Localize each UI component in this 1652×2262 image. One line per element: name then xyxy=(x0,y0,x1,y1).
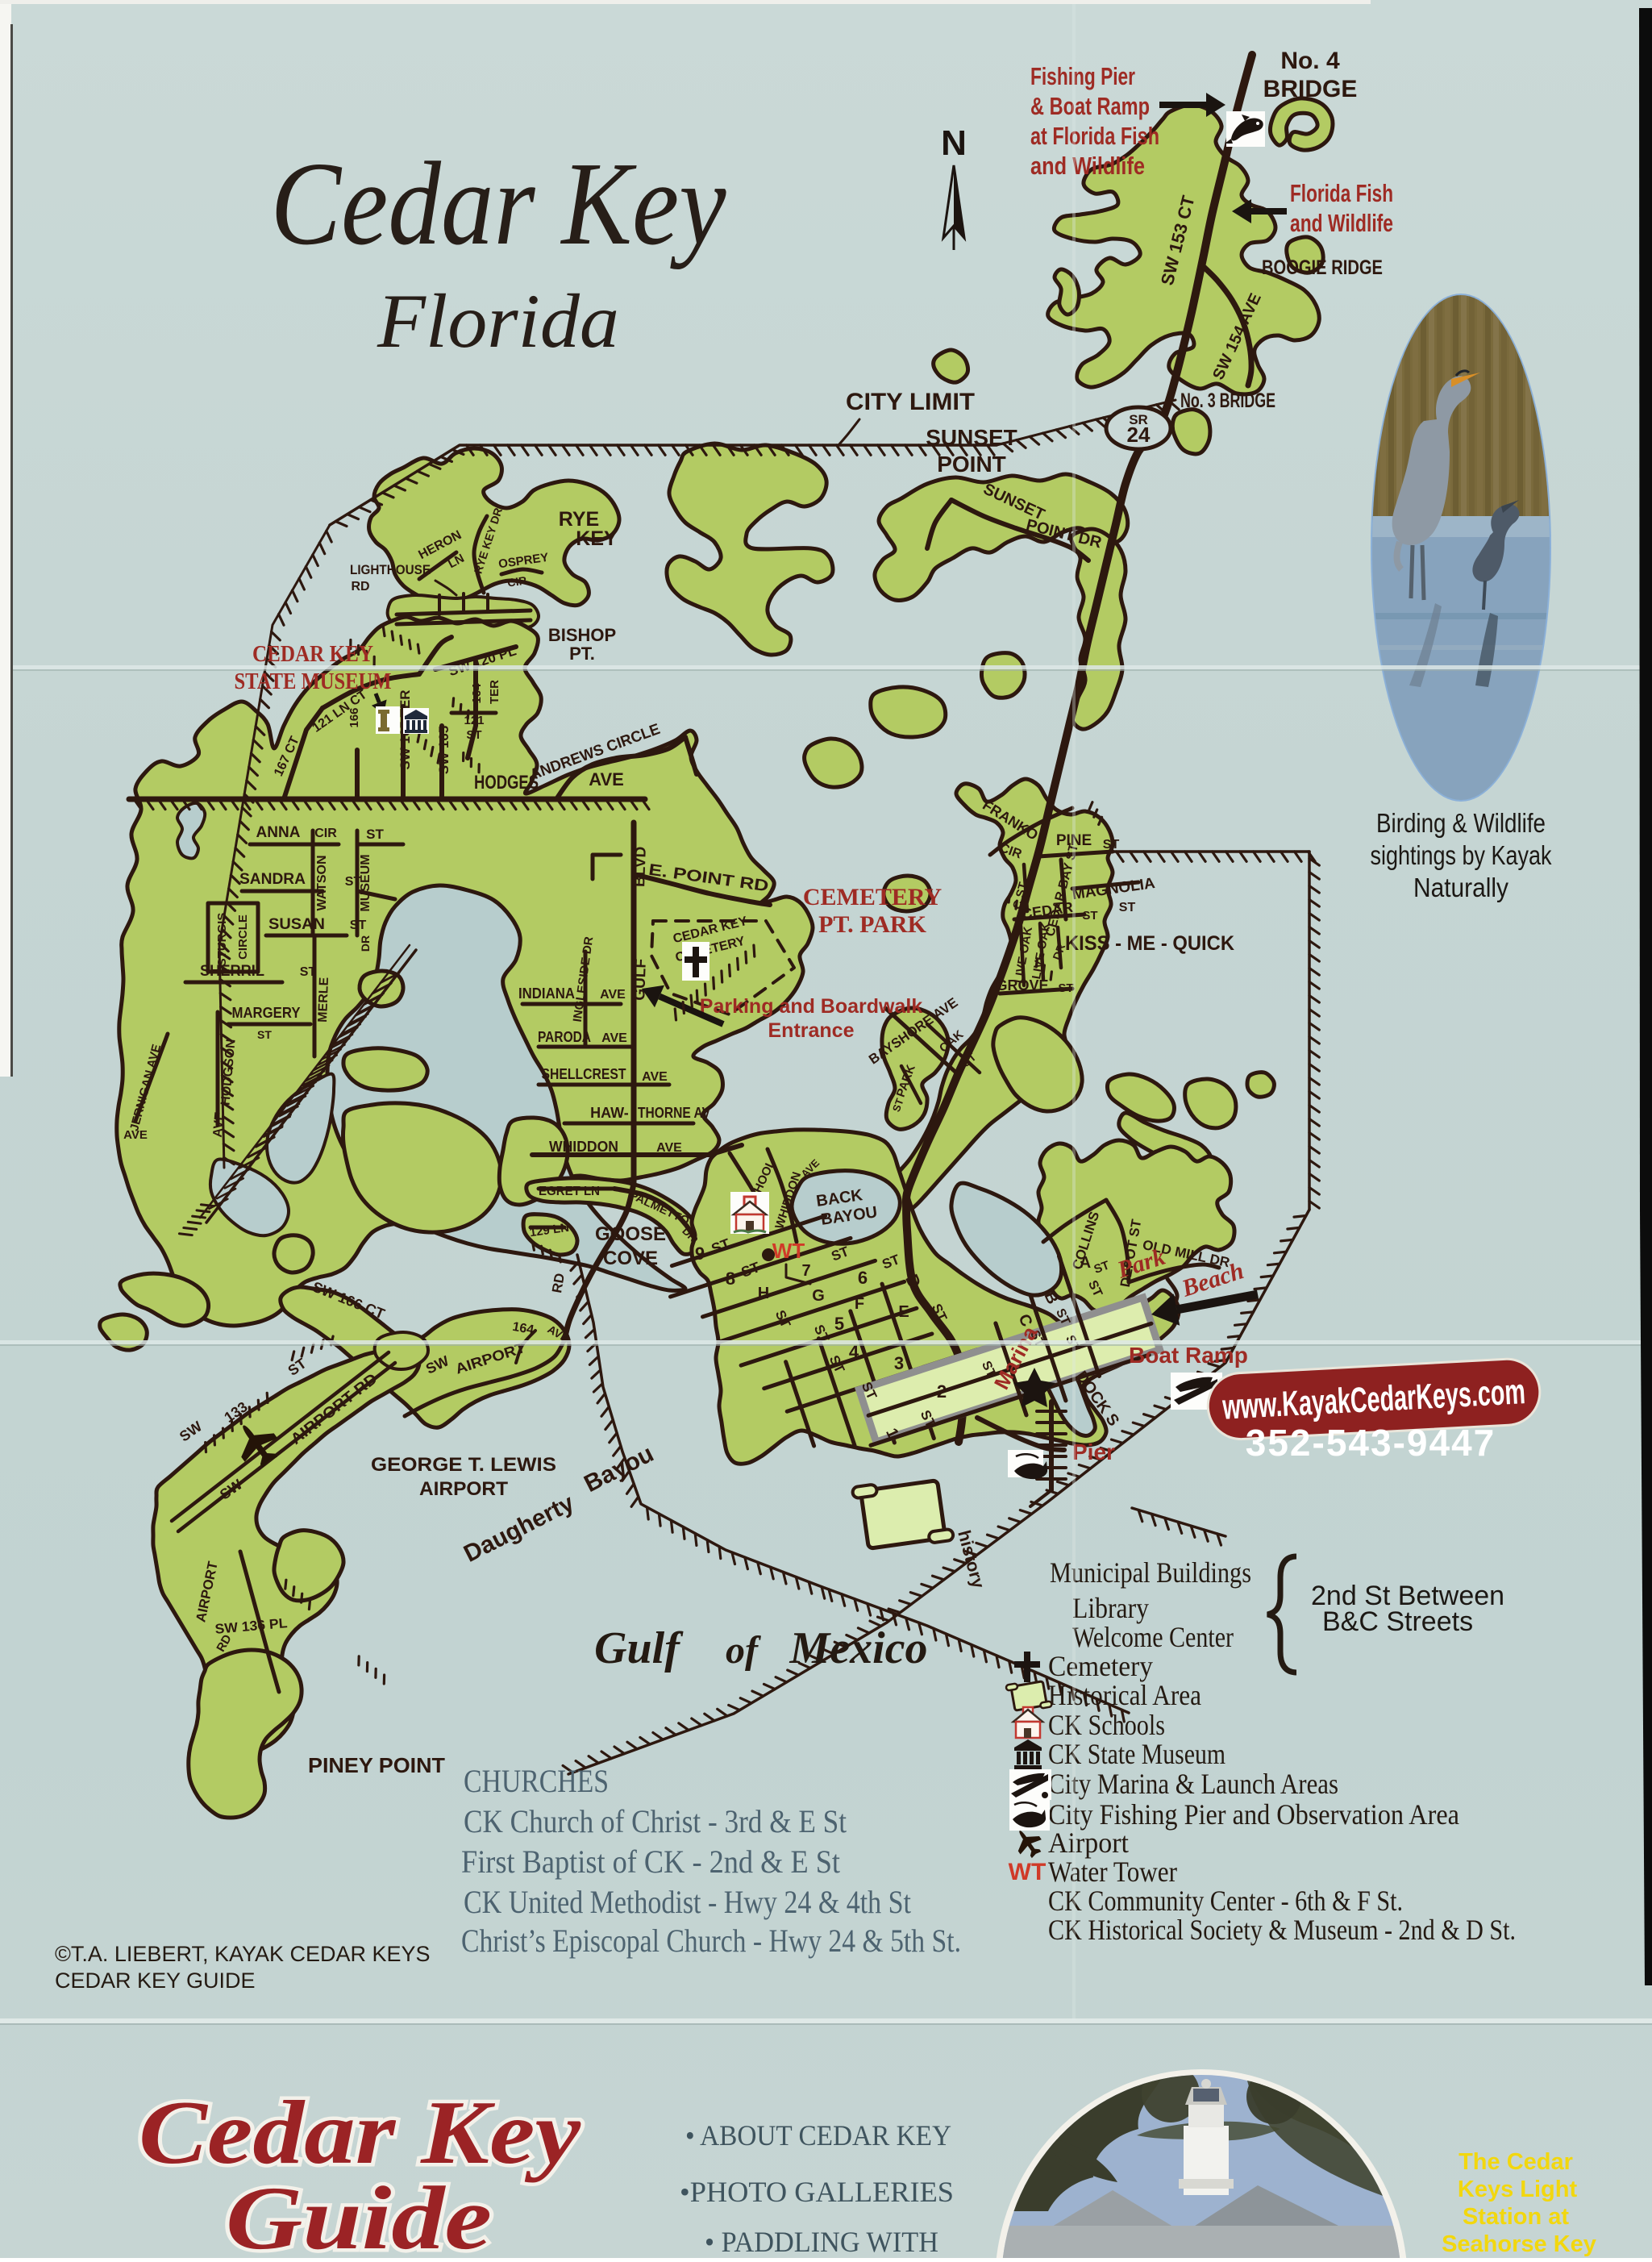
svg-text:Naturally: Naturally xyxy=(1413,873,1508,902)
svg-text:LIGHTHOUSE: LIGHTHOUSE xyxy=(350,562,431,577)
svg-text:PINEY POINT: PINEY POINT xyxy=(308,1753,445,1777)
svg-text:ST: ST xyxy=(466,728,481,742)
svg-text:WHIDDON: WHIDDON xyxy=(549,1139,618,1155)
svg-text:N: N xyxy=(941,123,967,163)
svg-text:PARODA: PARODA xyxy=(538,1029,591,1045)
svg-text:WT: WT xyxy=(1009,1859,1047,1885)
svg-text:GEORGE T. LEWIS: GEORGE T. LEWIS xyxy=(371,1454,556,1476)
svg-text:121: 121 xyxy=(464,714,484,727)
svg-text:E: E xyxy=(898,1303,909,1321)
svg-text:AIRPORT: AIRPORT xyxy=(419,1478,508,1500)
svg-text:ST: ST xyxy=(300,965,317,979)
svg-text:9: 9 xyxy=(695,1243,705,1264)
svg-text:SANDRA: SANDRA xyxy=(239,871,306,888)
svg-text:& Boat Ramp: & Boat Ramp xyxy=(1030,92,1150,120)
svg-text:7: 7 xyxy=(801,1262,810,1280)
svg-text:CEMETERY: CEMETERY xyxy=(803,884,943,910)
svg-text:AVE: AVE xyxy=(589,769,624,789)
svg-text:AVE: AVE xyxy=(656,1141,682,1155)
svg-text:MUSEUM: MUSEUM xyxy=(359,854,372,911)
svg-text:and Wildlife: and Wildlife xyxy=(1290,209,1393,237)
svg-text:6: 6 xyxy=(858,1268,868,1288)
svg-text:Gulf: Gulf xyxy=(594,1623,684,1673)
svg-text:Christ’s Episcopal Church - Hw: Christ’s Episcopal Church - Hwy 24 & 5th… xyxy=(461,1922,961,1959)
svg-text:5: 5 xyxy=(834,1314,844,1334)
svg-text:City Fishing Pier and Observat: City Fishing Pier and Observation Area xyxy=(1048,1798,1459,1831)
svg-text:Boat Ramp: Boat Ramp xyxy=(1129,1343,1248,1368)
svg-text:HAW-: HAW- xyxy=(590,1105,629,1121)
svg-text:ST: ST xyxy=(1058,981,1073,995)
svg-text:CK Community Center - 6th & F: CK Community Center - 6th & F St. xyxy=(1048,1885,1403,1917)
svg-text:166: 166 xyxy=(347,707,361,727)
svg-text:Municipal Buildings: Municipal Buildings xyxy=(1050,1556,1251,1589)
svg-text:Birding & Wildlife: Birding & Wildlife xyxy=(1376,808,1546,838)
svg-text:THORNE AV: THORNE AV xyxy=(638,1105,710,1121)
svg-text:Pier: Pier xyxy=(1072,1439,1115,1464)
svg-text:AVE: AVE xyxy=(642,1070,668,1084)
svg-text:DR: DR xyxy=(359,935,372,952)
svg-text:CIRCLE: CIRCLE xyxy=(236,914,250,960)
svg-text:Library: Library xyxy=(1072,1592,1149,1624)
svg-text:BRIDGE: BRIDGE xyxy=(1263,76,1358,102)
svg-text:SHERRIL: SHERRIL xyxy=(200,963,264,980)
svg-text:B&C Streets: B&C Streets xyxy=(1322,1606,1473,1637)
svg-text:SHELLCREST: SHELLCREST xyxy=(542,1066,626,1082)
svg-text:ST: ST xyxy=(1103,838,1120,852)
svg-text:SUNSET: SUNSET xyxy=(926,425,1017,450)
svg-text:No. 3 BRIDGE: No. 3 BRIDGE xyxy=(1180,389,1275,412)
svg-text:RD: RD xyxy=(351,580,369,594)
svg-text:Entrance: Entrance xyxy=(768,1019,855,1042)
svg-text:©T.A. LIEBERT, KAYAK CEDAR KEY: ©T.A. LIEBERT, KAYAK CEDAR KEYS xyxy=(55,1942,431,1966)
svg-text:PT.: PT. xyxy=(569,644,595,664)
svg-text:CK Church of Christ - 3rd & E: CK Church of Christ - 3rd & E St xyxy=(464,1803,847,1839)
svg-text:STURGIS: STURGIS xyxy=(215,913,229,967)
svg-text:CK United Methodist - Hwy 24 &: CK United Methodist - Hwy 24 & 4th St xyxy=(464,1884,911,1920)
svg-text:at Florida Fish: at Florida Fish xyxy=(1030,122,1159,150)
svg-text:POINT: POINT xyxy=(937,452,1006,477)
svg-text:MARGERY: MARGERY xyxy=(232,1005,301,1021)
svg-text:STATE MUSEUM: STATE MUSEUM xyxy=(235,669,392,694)
svg-text:Historical Area: Historical Area xyxy=(1048,1679,1201,1711)
svg-text:ST: ST xyxy=(366,827,384,842)
svg-text:KISS - ME - QUICK: KISS - ME - QUICK xyxy=(1065,932,1234,955)
svg-text:Mexico: Mexico xyxy=(789,1623,927,1673)
svg-text:CEDAR KEY GUIDE: CEDAR KEY GUIDE xyxy=(55,1968,256,1993)
svg-text:CK Schools: CK Schools xyxy=(1048,1709,1165,1741)
svg-text:Florida Fish: Florida Fish xyxy=(1290,179,1393,207)
svg-text:ST: ST xyxy=(1082,909,1097,923)
svg-text:First Baptist of CK - 2nd & E: First Baptist of CK - 2nd & E St xyxy=(461,1843,840,1880)
svg-text:SUSAN: SUSAN xyxy=(268,916,325,933)
svg-text:MERLE: MERLE xyxy=(316,977,331,1023)
svg-text:Fishing Pier: Fishing Pier xyxy=(1030,62,1135,90)
svg-text:TER: TER xyxy=(488,680,501,704)
svg-text:CHURCHES: CHURCHES xyxy=(464,1763,609,1799)
svg-text:CEDAR KEY: CEDAR KEY xyxy=(252,642,373,667)
svg-text:Guide: Guide xyxy=(226,2168,492,2258)
svg-text:City Marina & Launch Areas: City Marina & Launch Areas xyxy=(1048,1768,1338,1800)
svg-text:CIR: CIR xyxy=(314,827,337,840)
svg-text:BOOGIE RIDGE: BOOGIE RIDGE xyxy=(1262,256,1383,279)
svg-text:PT. PARK: PT. PARK xyxy=(818,911,927,938)
svg-text:F: F xyxy=(855,1295,864,1313)
svg-text:KEY: KEY xyxy=(576,527,618,550)
svg-text:CITY LIMIT: CITY LIMIT xyxy=(846,389,975,415)
svg-text:No. 4: No. 4 xyxy=(1280,48,1340,74)
svg-text:of: of xyxy=(726,1629,761,1672)
svg-text:sightings by Kayak: sightings by Kayak xyxy=(1371,840,1552,870)
svg-text:8: 8 xyxy=(726,1268,735,1289)
svg-text:Florida: Florida xyxy=(377,278,619,364)
svg-text:AVE: AVE xyxy=(600,988,626,1002)
svg-text:G: G xyxy=(812,1287,825,1305)
svg-text:Cedar Key: Cedar Key xyxy=(271,138,726,270)
svg-text:ANNA: ANNA xyxy=(256,824,301,841)
svg-text:•PHOTO GALLERIES: •PHOTO GALLERIES xyxy=(680,2176,954,2208)
svg-text:Water Tower: Water Tower xyxy=(1048,1856,1177,1888)
svg-text:Parking and Boardwalk: Parking and Boardwalk xyxy=(700,995,923,1018)
svg-text:GOOSE: GOOSE xyxy=(595,1223,666,1245)
svg-text:and Wildlife: and Wildlife xyxy=(1030,152,1145,180)
svg-text:Welcome Center: Welcome Center xyxy=(1072,1621,1234,1653)
svg-text:CK Historical Society & Museum: CK Historical Society & Museum - 2nd & D… xyxy=(1048,1914,1516,1946)
svg-text:INDIANA: INDIANA xyxy=(518,985,575,1002)
svg-text:GROVE: GROVE xyxy=(996,977,1048,994)
svg-text:The Cedar: The Cedar xyxy=(1459,2149,1573,2175)
svg-text:EGRET LN: EGRET LN xyxy=(539,1185,600,1198)
svg-text:2: 2 xyxy=(937,1381,947,1402)
svg-text:Airport: Airport xyxy=(1048,1827,1129,1859)
svg-text:ST: ST xyxy=(1119,901,1136,914)
svg-text:• ABOUT CEDAR KEY: • ABOUT CEDAR KEY xyxy=(685,2119,951,2152)
svg-text:CIR: CIR xyxy=(506,573,527,589)
svg-text:SW 165: SW 165 xyxy=(436,726,451,774)
svg-text:Seahorse Key: Seahorse Key xyxy=(1442,2231,1596,2257)
svg-text:H: H xyxy=(758,1285,769,1302)
svg-text:Keys Light: Keys Light xyxy=(1458,2177,1578,2202)
svg-text:WATSON: WATSON xyxy=(315,855,329,910)
svg-text:• PADDLING WITH: • PADDLING WITH xyxy=(705,2226,938,2258)
svg-text:AVE: AVE xyxy=(123,1128,148,1142)
svg-text:BISHOP: BISHOP xyxy=(548,625,616,645)
svg-text:352-543-9447: 352-543-9447 xyxy=(1246,1422,1496,1464)
svg-text:ST: ST xyxy=(350,919,367,932)
svg-text:AVE: AVE xyxy=(601,1031,627,1045)
svg-text:Cemetery: Cemetery xyxy=(1048,1650,1153,1682)
svg-text:24: 24 xyxy=(1127,423,1151,447)
svg-text:3: 3 xyxy=(894,1353,904,1373)
svg-text:ST: ST xyxy=(257,1028,272,1041)
svg-text:BLVD: BLVD xyxy=(631,846,650,887)
svg-text:Station at: Station at xyxy=(1463,2204,1569,2230)
svg-text:COVE: COVE xyxy=(603,1248,658,1269)
svg-text:HODGES: HODGES xyxy=(474,772,539,794)
svg-text:AVE: AVE xyxy=(211,1111,227,1138)
svg-text:164: 164 xyxy=(470,683,484,704)
svg-text:WT: WT xyxy=(772,1239,805,1263)
